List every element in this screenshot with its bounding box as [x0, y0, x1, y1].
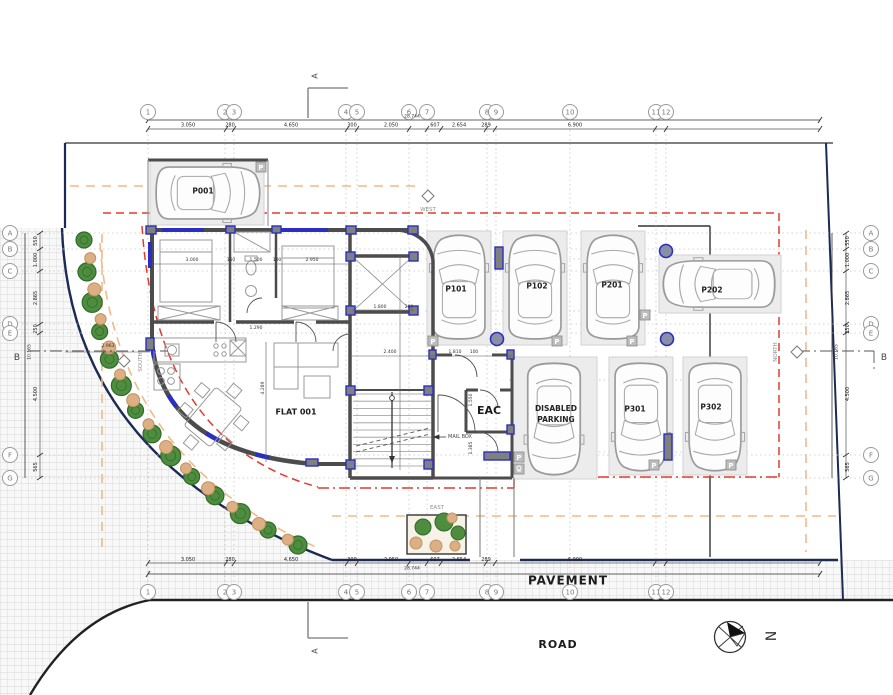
grid-bubble-row-label: A — [869, 230, 874, 238]
wall-column-block — [346, 460, 355, 469]
dimension-label: 4.500 — [845, 387, 851, 401]
section-b-marker-left: B — [14, 354, 20, 364]
wall-column-block — [408, 226, 418, 234]
svg-text:P: P — [629, 338, 634, 346]
wall-column-block — [272, 226, 281, 233]
dimension-label: 3.050 — [181, 557, 195, 563]
tree-icon — [415, 519, 431, 535]
shrub-icon — [410, 537, 422, 549]
grid-bubble-col-label: 10 — [566, 589, 575, 597]
dimension-label: 550 — [845, 236, 851, 246]
overall-dim-right: 10.165 — [836, 344, 841, 360]
grid-bubble-col-label: 10 — [566, 109, 575, 117]
svg-text:P: P — [430, 338, 435, 346]
site-plan-drawing: P001P101P102P201P202DISABLEDPARKINGP301P… — [0, 0, 893, 695]
dimension-label: 280 — [225, 557, 235, 563]
shrub-icon — [88, 283, 101, 296]
dimension-label: 2.050 — [384, 557, 398, 563]
dimension-label: 2.050 — [384, 123, 398, 129]
shrub-icon — [160, 441, 173, 454]
overall-dim-left: 10.165 — [29, 344, 34, 360]
interior-dimension-label: 100 — [273, 257, 282, 263]
svg-text:P: P — [642, 312, 647, 320]
grid-bubble-row-label: B — [8, 246, 13, 254]
shrub-icon — [180, 463, 191, 474]
dimension-label: 1.000 — [33, 253, 39, 267]
grid-bubble-col-label: 7 — [425, 589, 429, 597]
column-marker — [491, 333, 504, 346]
dimension-label: 4.500 — [33, 387, 39, 401]
dimension-label: 250 — [33, 324, 39, 334]
shrub-icon — [447, 513, 457, 523]
overall-dim-bottom: 28.744 — [404, 568, 420, 573]
wall-column-block — [346, 252, 355, 261]
section-b-marker-right: B — [881, 354, 887, 364]
eac-room-label: EAC — [477, 405, 501, 417]
section-a-marker-bottom: A — [312, 648, 321, 653]
wall-column-block — [495, 247, 503, 269]
wall-column-block — [146, 226, 156, 234]
shrub-icon — [143, 419, 154, 430]
wall-column-block — [664, 434, 672, 460]
pavement-label: PAVEMENT — [528, 574, 608, 587]
overall-dim-top: 28.744 — [404, 116, 420, 121]
grid-bubble-row-label: G — [7, 475, 12, 483]
grid-bubble-row-label: C — [8, 268, 13, 276]
grid-bubble-col-label: 9 — [494, 589, 498, 597]
parking-space-label: P302 — [700, 403, 721, 412]
dimension-label: 2.654 — [452, 123, 466, 129]
interior-dimension-label: 1.550 — [468, 393, 474, 406]
interior-dimension-label: 1.385 — [468, 441, 474, 454]
grid-bubble-col-label: 5 — [355, 109, 359, 117]
svg-text:P: P — [651, 462, 656, 470]
svg-text:P: P — [728, 462, 733, 470]
interior-dimension-label: 2.950 — [306, 257, 319, 263]
shrub-icon — [252, 517, 265, 530]
west-facade-label: WEST — [420, 207, 436, 213]
grid-bubble-col-label: 1 — [146, 109, 150, 117]
stair-core — [353, 256, 431, 470]
wall-column-block — [429, 350, 436, 359]
dimension-label: 300 — [347, 557, 357, 563]
wall-column-block — [346, 226, 356, 234]
grid-bubble-row-label: B — [869, 246, 874, 254]
parking-space-label: P101 — [445, 285, 466, 294]
car-icon — [663, 258, 774, 311]
flat-label: FLAT 001 — [275, 409, 316, 418]
wall-column-block — [306, 459, 318, 466]
grid-bubble-col-label: 4 — [344, 589, 349, 597]
shrub-icon — [430, 540, 442, 552]
svg-text:P: P — [258, 164, 263, 172]
dimension-label: 2.654 — [452, 557, 466, 563]
interior-dimension-label: 2.400 — [384, 349, 397, 355]
dimension-label: 2.865 — [33, 291, 39, 305]
road-label: ROAD — [538, 639, 577, 651]
floor-plan-canvas: P001P101P102P201P202DISABLEDPARKINGP301P… — [0, 0, 893, 695]
dimension-label: 6.900 — [568, 123, 582, 129]
parking-space-label: P301 — [624, 405, 645, 414]
furniture — [154, 232, 338, 467]
dimension-label: 4.650 — [284, 557, 298, 563]
interior-dimension-label: 200 — [405, 304, 414, 310]
grid-bubble-col-label: 12 — [662, 589, 671, 597]
shrub-icon — [282, 534, 293, 545]
dimension-label: 550 — [33, 236, 39, 246]
shrub-icon — [227, 501, 238, 512]
column-marker — [660, 245, 673, 258]
north-facade-label: NORTH — [773, 342, 779, 361]
dimension-label: 1.000 — [845, 253, 851, 267]
grid-bubble-col-label: 6 — [407, 589, 412, 597]
tree-icon — [451, 526, 465, 540]
shrub-icon — [127, 394, 140, 407]
dimension-label: 607 — [430, 557, 440, 563]
shrub-icon — [115, 369, 126, 380]
grid-bubble-col-label: 4 — [344, 109, 349, 117]
grid-bubble-col-label: 1 — [146, 589, 150, 597]
grid-bubble-row-label: E — [869, 330, 873, 338]
section-a-marker-top: A — [312, 73, 321, 78]
wall-column-block — [424, 460, 433, 469]
dimension-label: 607 — [430, 123, 440, 129]
tree-icon — [92, 324, 108, 340]
car-icon — [611, 363, 670, 471]
wall-column-block — [409, 252, 418, 261]
shrub-icon — [95, 314, 106, 325]
wall-column-block — [226, 226, 235, 233]
parking-space-label: P202 — [701, 286, 722, 295]
shrub-icon — [85, 253, 96, 264]
dimension-label: 300 — [347, 123, 357, 129]
interior-dimension-label: 4.289 — [260, 381, 266, 394]
interior-dimension-label: 3.000 — [186, 257, 199, 263]
grid-bubble-col-label: 9 — [494, 109, 498, 117]
column-marker — [661, 333, 674, 346]
grid-bubble-col-label: 7 — [425, 109, 429, 117]
wall-column-block — [507, 425, 514, 434]
parking-space-label: P102 — [526, 282, 547, 291]
site-boundaries — [30, 143, 893, 695]
interior-dimension-label: 1.810 — [449, 349, 462, 355]
mailbox-label: MAIL BOX — [448, 434, 472, 440]
north-arrow-letter: N — [761, 631, 776, 641]
svg-text:P: P — [554, 338, 559, 346]
grid-bubble-row-label: F — [8, 452, 12, 460]
wall-column-block — [484, 452, 510, 460]
interior-dimension-label: 1.290 — [250, 325, 263, 331]
tree-icon — [78, 263, 96, 281]
grid-bubble-row-label: C — [869, 268, 874, 276]
interior-dimension-label: 100 — [470, 349, 479, 355]
dimension-label: 565 — [845, 462, 851, 472]
dimension-label: 6.900 — [568, 557, 582, 563]
grid-bubble-row-label: F — [869, 452, 873, 460]
dimension-label: 250 — [845, 324, 851, 334]
dimension-label: 280 — [225, 123, 235, 129]
svg-text:P: P — [516, 454, 521, 462]
dimension-label: 4.650 — [284, 123, 298, 129]
grid-bubble-col-label: 3 — [232, 109, 236, 117]
wall-column-block — [424, 386, 433, 395]
grid-bubble-row-label: E — [8, 330, 12, 338]
grid-bubble-col-label: 3 — [232, 589, 236, 597]
car-icon — [685, 363, 744, 471]
grid-bubble-row-label: G — [868, 475, 873, 483]
dimension-label: 289 — [481, 123, 491, 129]
grid-bubble-col-label: 12 — [662, 109, 671, 117]
wall-column-block — [346, 306, 355, 315]
north-arrow-icon — [715, 622, 746, 653]
dimension-label: 3.050 — [181, 123, 195, 129]
dimension-label: 2.865 — [845, 291, 851, 305]
parking-space-label: P201 — [601, 281, 622, 290]
wall-column-block — [346, 386, 355, 395]
grid-bubble-row-label: A — [8, 230, 13, 238]
interior-dimension-label: 150 — [227, 257, 236, 263]
grid-bubble-col-label: 5 — [355, 589, 359, 597]
shrub-icon — [202, 482, 215, 495]
interior-dimension-label: 1.500 — [250, 257, 263, 263]
dimension-label: 565 — [33, 462, 39, 472]
wall-column-block — [507, 350, 514, 359]
dimension-label: 289 — [481, 557, 491, 563]
tree-icon — [76, 232, 92, 248]
shrub-icon — [450, 541, 460, 551]
south-facade-label: SOUTH — [138, 352, 144, 371]
interior-dimension-label: 1.800 — [374, 304, 387, 310]
east-facade-label: EAST — [430, 505, 444, 511]
interior-dimension-label: 2.963 — [102, 343, 115, 349]
wall-column-block — [146, 338, 154, 350]
parking-space-label: P001 — [192, 187, 213, 196]
